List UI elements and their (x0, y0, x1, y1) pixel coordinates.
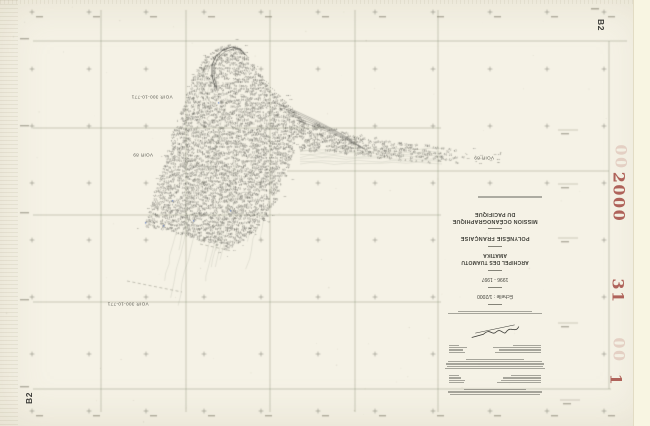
map-canvas (0, 0, 650, 426)
stamp-number-31: 31 (609, 278, 628, 303)
title-block-fineprint-large (443, 358, 547, 370)
title-block-fineprint-top (443, 388, 547, 396)
island-name: AMATIKA (443, 252, 547, 259)
sheet-corner-label-top-right: B2 (596, 19, 606, 31)
region-name: POLYNÉSIE FRANÇAISE (443, 235, 547, 241)
map-sheet: VOIR 300-10-771 VOIR 89 VOIR 89 VOIR 300… (0, 0, 650, 426)
scan-edge-top (0, 0, 650, 4)
archipelago-name: ARCHIPEL DES TUAMOTU AMATIKA (443, 252, 547, 265)
stamp-ghost-lower: 00 (610, 337, 629, 362)
stamp-year: 2000 (610, 172, 629, 223)
title-block-leader-b (443, 374, 547, 385)
map-reference-label: VOIR 300-10-771 (131, 95, 172, 100)
sheet-corner-label-bottom-left: B2 (24, 392, 34, 404)
title-block-leader-a (443, 343, 547, 354)
survey-years: 1996 - 1997 (443, 276, 547, 282)
signature (468, 317, 522, 341)
map-reference-label: VOIR 300-10-771 (107, 302, 148, 307)
map-scale: Échelle : 1/2000 (443, 293, 547, 299)
title-block-fineprint-scale-note (443, 310, 547, 316)
scan-edge-right (633, 0, 650, 426)
stamp-ghost-upper: 00 (612, 144, 631, 169)
mission-title: MISSION OCÉANOGRAPHIQUE DU PACIFIQUE (443, 210, 547, 224)
map-reference-label: VOIR 89 (474, 156, 494, 161)
title-block: Échelle : 1/2000 1996 - 1997 ARCHIPEL DE… (443, 210, 547, 396)
scan-edge-left (0, 0, 18, 426)
stamp-number-1: 1 (607, 374, 626, 387)
fineprint-note-line (478, 196, 542, 198)
map-reference-label: VOIR 89 (133, 153, 153, 158)
